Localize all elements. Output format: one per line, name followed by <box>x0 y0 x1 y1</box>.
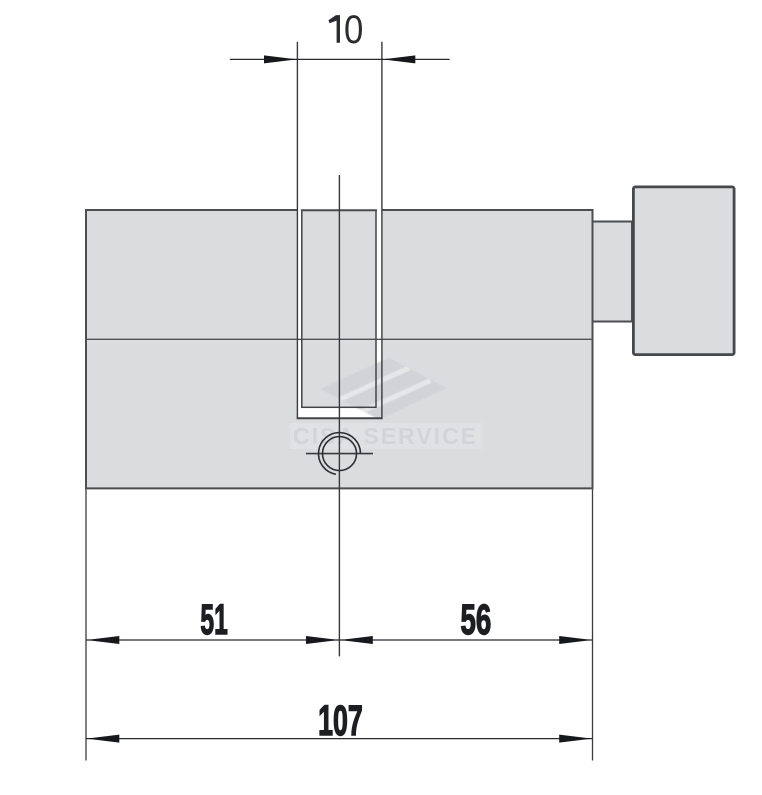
svg-text:56: 56 <box>461 596 492 643</box>
svg-text:107: 107 <box>318 697 363 745</box>
svg-text:51: 51 <box>200 597 227 643</box>
svg-text:0: 0 <box>344 7 363 52</box>
